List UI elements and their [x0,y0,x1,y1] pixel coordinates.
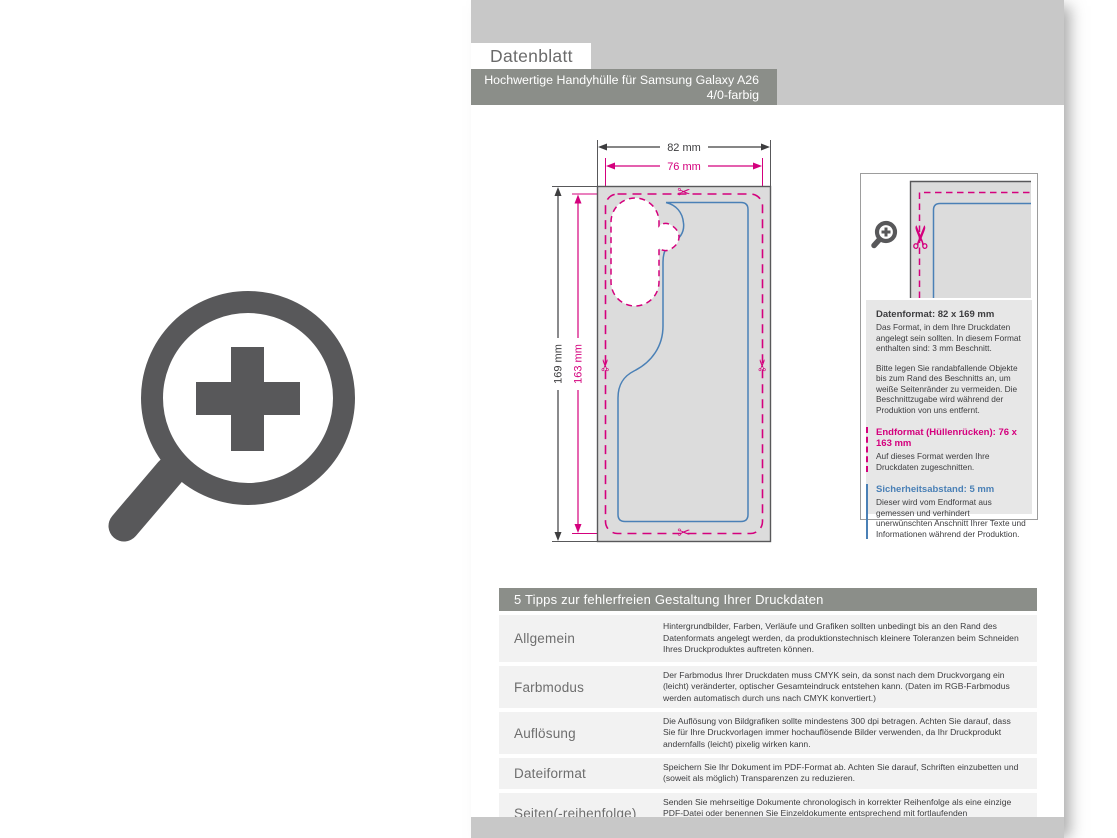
table-row: Allgemein Hintergrundbilder, Farben, Ver… [499,615,1037,662]
dimension-width-inner: 76 mm [667,161,701,173]
zoom-plus-watermark-icon [100,268,400,558]
product-title-bar: Hochwertige Handyhülle für Samsung Galax… [471,69,777,105]
tip-text: Der Farbmodus Ihrer Druckdaten muss CMYK… [663,670,1023,704]
footer-silver-band [471,817,1064,838]
format-info-text: Datenformat: 82 x 169 mm Das Format, in … [866,300,1032,514]
tip-label: Auflösung [499,712,663,754]
dimension-width-outer: 82 mm [667,142,701,154]
datenformat-section: Datenformat: 82 x 169 mm Das Format, in … [866,309,1026,354]
tips-table: 5 Tipps zur fehlerfreien Gestaltung Ihre… [499,588,1037,835]
table-row: Farbmodus Der Farbmodus Ihrer Druckdaten… [499,666,1037,708]
endformat-section: Endformat (Hüllenrücken): 76 x 163 mm Au… [866,427,1026,472]
table-row: Auflösung Die Auflösung von Bildgrafiken… [499,712,1037,754]
dimension-height-outer: 169 mm [553,344,565,384]
sheet-label: Datenblatt [471,43,591,69]
zoom-detail-diagram: ✂ [861,174,1037,298]
tip-text: Hintergrundbilder, Farben, Verläufe und … [663,621,1023,655]
sicherheitsabstand-section: Sicherheitsabstand: 5 mm Dieser wird vom… [866,484,1026,539]
magnifier-plus-icon [874,223,895,246]
tips-table-title: 5 Tipps zur fehlerfreien Gestaltung Ihre… [499,588,1037,611]
product-color-variant: 4/0-farbig [471,88,759,103]
sicherheitsabstand-body: Dieser wird vom Endformat aus gemessen u… [876,497,1026,539]
beschnitt-note-section: Bitte legen Sie randabfallende Objekte b… [866,363,1026,416]
scissors-icon: ✂ [677,523,690,542]
tip-text: Die Auflösung von Bildgrafiken sollte mi… [663,716,1023,750]
beschnitt-note: Bitte legen Sie randabfallende Objekte b… [876,363,1026,416]
sicherheitsabstand-title: Sicherheitsabstand: 5 mm [876,484,1026,495]
tip-label: Allgemein [499,615,663,662]
scissors-icon: ✂ [753,358,772,371]
datenformat-title: Datenformat: 82 x 169 mm [876,309,1026,320]
case-template-diagram: 82 mm 76 mm 169 mm 163 mm ✂ ✂ ✂ ✂ [540,133,804,557]
format-info-panel: ✂ Datenformat: 82 x 169 mm Das Format, i… [860,173,1038,520]
scissors-icon: ✂ [902,224,940,251]
tip-label: Dateiformat [499,758,663,789]
tip-label: Farbmodus [499,666,663,708]
product-title: Hochwertige Handyhülle für Samsung Galax… [471,73,759,88]
table-row: Dateiformat Speichern Sie Ihr Dokument i… [499,758,1037,789]
datenformat-body: Das Format, in dem Ihre Druckdaten angel… [876,322,1026,354]
tip-text: Speichern Sie Ihr Dokument im PDF-Format… [663,762,1023,785]
dimension-height-inner: 163 mm [573,344,585,384]
endformat-title: Endformat (Hüllenrücken): 76 x 163 mm [876,427,1026,449]
endformat-body: Auf dieses Format werden Ihre Druckdaten… [876,451,1026,472]
datasheet-page: Datenblatt Hochwertige Handyhülle für Sa… [0,0,1117,838]
scissors-icon: ✂ [677,183,690,202]
scissors-icon: ✂ [596,358,615,371]
